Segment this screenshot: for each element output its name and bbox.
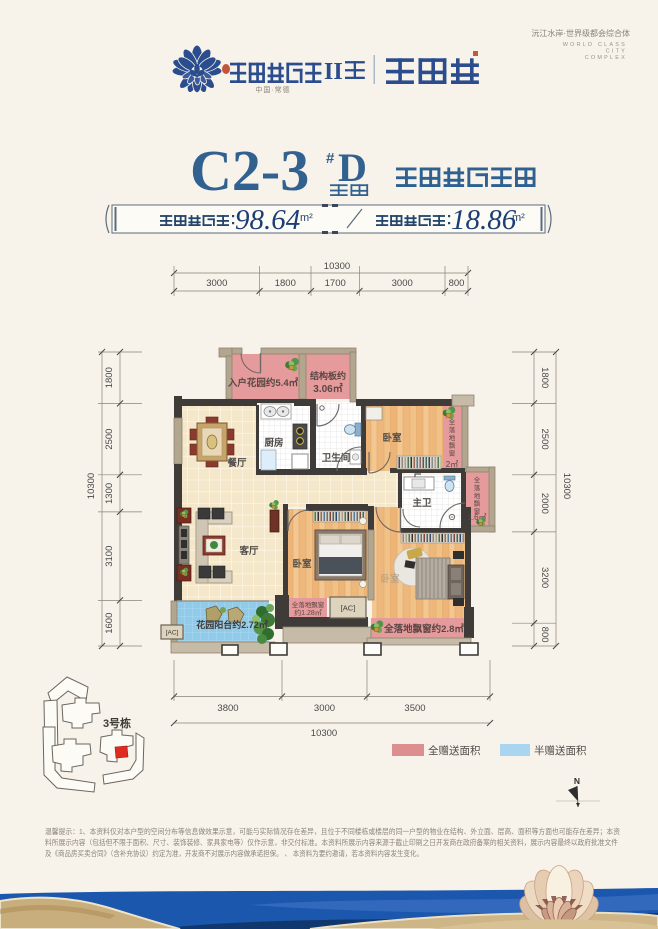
- svg-text:花园阳台约2.72㎡: 花园阳台约2.72㎡: [196, 619, 268, 630]
- svg-text:地: 地: [449, 433, 456, 442]
- svg-text:卧室: 卧室: [382, 432, 402, 444]
- svg-text:C2-3: C2-3: [190, 138, 309, 203]
- svg-text:地: 地: [474, 491, 481, 500]
- svg-text:半赠送面积: 半赠送面积: [534, 744, 587, 757]
- svg-text:沅江水岸·世界级都会综合体: 沅江水岸·世界级都会综合体: [531, 28, 630, 38]
- svg-text:卧室: 卧室: [380, 573, 399, 585]
- svg-text:10300: 10300: [561, 473, 572, 499]
- svg-text:全: 全: [449, 417, 456, 426]
- svg-text:1700: 1700: [325, 278, 346, 289]
- svg-text:10300: 10300: [311, 728, 337, 739]
- svg-text:3.06㎡: 3.06㎡: [313, 382, 342, 395]
- svg-text:中国·常德: 中国·常德: [255, 85, 290, 94]
- svg-text:全落地飘窗约2.8㎡: 全落地飘窗约2.8㎡: [383, 623, 464, 635]
- svg-text:m²: m²: [300, 212, 313, 224]
- svg-text:温馨提示：1、本资料仅对本户型的空间分布等信息做效果示意，可: 温馨提示：1、本资料仅对本户型的空间分布等信息做效果示意，可能与实际情况存在差异…: [45, 827, 620, 836]
- svg-text:窗: 窗: [449, 449, 456, 458]
- svg-text:COMPLEX: COMPLEX: [585, 55, 627, 61]
- svg-text:全: 全: [474, 475, 481, 484]
- svg-text:厨房: 厨房: [264, 437, 283, 449]
- svg-text:料所展示内容（包括但不限于面积、尺寸、装饰装修、家具家电等）: 料所展示内容（包括但不限于面积、尺寸、装饰装修、家具家电等）仅作示意，非交付标准…: [45, 838, 618, 847]
- svg-text:2㎡: 2㎡: [446, 460, 458, 469]
- svg-text:3800: 3800: [217, 703, 238, 714]
- svg-text:3100: 3100: [104, 546, 115, 567]
- svg-text:18.86: 18.86: [451, 204, 517, 236]
- svg-text:1600: 1600: [104, 613, 115, 634]
- svg-text:1300: 1300: [104, 483, 115, 504]
- svg-text:飘: 飘: [449, 442, 456, 450]
- svg-text:10300: 10300: [324, 261, 350, 272]
- svg-text:N: N: [574, 776, 580, 786]
- svg-text:结构板约: 结构板约: [310, 370, 346, 381]
- svg-text:餐厅: 餐厅: [226, 457, 247, 469]
- svg-text:落: 落: [449, 425, 456, 434]
- svg-text:98.64: 98.64: [235, 204, 300, 236]
- svg-text:主卫: 主卫: [412, 497, 432, 509]
- svg-text:800: 800: [539, 627, 550, 643]
- svg-text:II: II: [324, 59, 343, 85]
- svg-text:m²: m²: [512, 212, 525, 224]
- svg-text:3000: 3000: [206, 278, 227, 289]
- svg-text:及《商品房买卖合同》（含补充协议）约定为准，开发商不对展示内: 及《商品房买卖合同》（含补充协议）约定为准，开发商不对展示内容做承诺担保。 、 …: [45, 849, 423, 858]
- svg-text:1800: 1800: [275, 278, 296, 289]
- svg-text:1800: 1800: [104, 367, 115, 388]
- svg-text:10300: 10300: [86, 473, 97, 499]
- svg-text:2500: 2500: [104, 429, 115, 450]
- svg-text:2500: 2500: [539, 429, 550, 450]
- svg-text:3200: 3200: [539, 567, 550, 588]
- svg-text:3000: 3000: [392, 278, 413, 289]
- svg-text:1800: 1800: [539, 367, 550, 388]
- svg-text:约1.28㎡: 约1.28㎡: [294, 608, 322, 617]
- svg-text:入户花园约5.4㎡: 入户花园约5.4㎡: [227, 377, 299, 389]
- svg-text:全落地飘窗: 全落地飘窗: [292, 600, 325, 609]
- svg-text:D: D: [338, 145, 367, 190]
- svg-text:WORLD CLASS: WORLD CLASS: [563, 42, 627, 48]
- svg-text:[AC]: [AC]: [166, 630, 179, 637]
- svg-text:客厅: 客厅: [238, 545, 259, 557]
- svg-text:CITY: CITY: [606, 49, 627, 55]
- svg-text:800: 800: [449, 278, 465, 289]
- svg-text:2000: 2000: [539, 493, 550, 514]
- svg-text:3号栋: 3号栋: [103, 716, 131, 730]
- svg-text:3500: 3500: [404, 703, 425, 714]
- svg-text:#: #: [326, 150, 335, 167]
- svg-text:[AC]: [AC]: [341, 604, 356, 613]
- svg-text:飘: 飘: [474, 500, 481, 508]
- svg-text:全赠送面积: 全赠送面积: [428, 744, 481, 757]
- svg-text:卫生间: 卫生间: [322, 452, 351, 464]
- svg-text:落: 落: [474, 483, 481, 492]
- svg-text:3000: 3000: [314, 703, 335, 714]
- svg-text:卧室: 卧室: [292, 558, 312, 570]
